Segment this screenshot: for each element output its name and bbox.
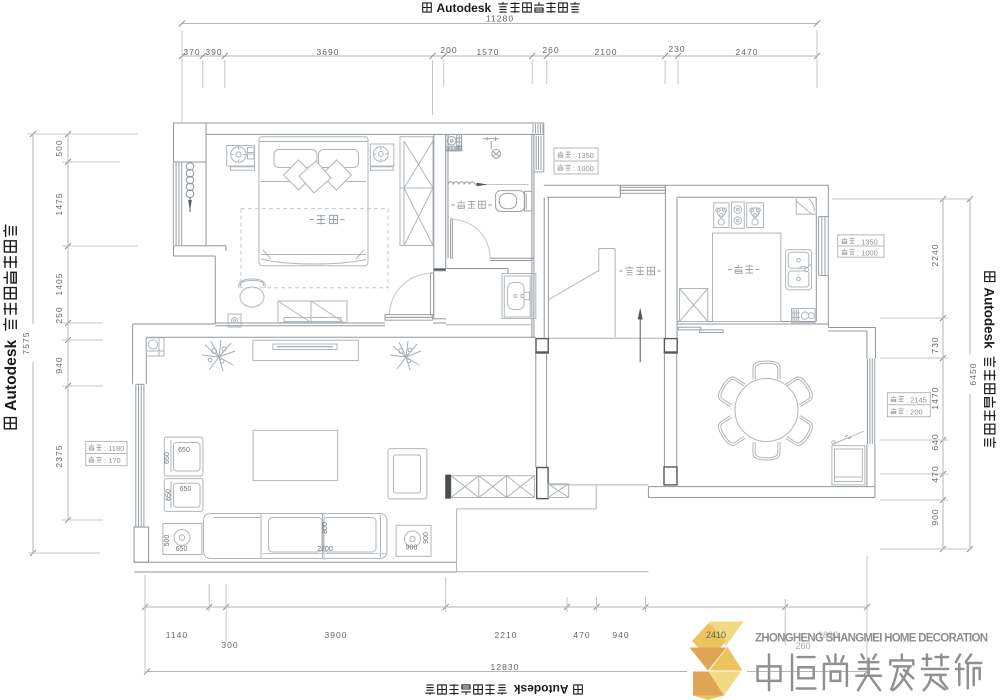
- svg-text:Autodesk: Autodesk: [982, 287, 997, 349]
- svg-text:500: 500: [54, 139, 64, 156]
- svg-text:Autodesk: Autodesk: [3, 339, 20, 410]
- svg-text:3690: 3690: [316, 47, 339, 57]
- svg-text:2410: 2410: [706, 630, 726, 640]
- svg-text:300: 300: [221, 640, 238, 650]
- svg-text:390: 390: [205, 47, 222, 57]
- svg-text:640: 640: [930, 433, 940, 450]
- svg-text:900: 900: [406, 545, 418, 552]
- svg-text:Autodesk: Autodesk: [514, 682, 569, 696]
- svg-text:800: 800: [322, 522, 329, 534]
- svg-text:2375: 2375: [54, 444, 64, 467]
- svg-text:230: 230: [668, 44, 685, 54]
- svg-text:1570: 1570: [476, 47, 499, 57]
- svg-text:900: 900: [930, 508, 940, 525]
- svg-text:2470: 2470: [735, 47, 758, 57]
- svg-text:: 1180: : 1180: [104, 444, 124, 453]
- svg-text:900: 900: [423, 532, 430, 544]
- svg-text:: 1000: : 1000: [857, 248, 878, 257]
- svg-text:3900: 3900: [324, 630, 347, 640]
- svg-text:2200: 2200: [317, 546, 333, 553]
- svg-text:2210: 2210: [494, 630, 517, 640]
- svg-text:1405: 1405: [54, 272, 64, 295]
- svg-text:650: 650: [164, 452, 171, 464]
- svg-text:2240: 2240: [930, 243, 940, 266]
- svg-text:Autodesk: Autodesk: [437, 1, 492, 15]
- svg-text:: 1350: : 1350: [857, 237, 878, 246]
- svg-text:650: 650: [166, 489, 173, 501]
- svg-text:: 200: : 200: [906, 408, 923, 417]
- svg-text:500: 500: [164, 535, 171, 547]
- svg-text:650: 650: [176, 546, 188, 553]
- svg-text:6450: 6450: [968, 362, 978, 385]
- svg-text:: 170: : 170: [104, 456, 121, 465]
- svg-text:200: 200: [440, 45, 457, 55]
- svg-text:1470: 1470: [930, 386, 940, 409]
- svg-text:: 2145: : 2145: [906, 396, 927, 405]
- svg-text:260: 260: [542, 45, 559, 55]
- svg-text:730: 730: [930, 336, 940, 353]
- svg-text:470: 470: [930, 465, 940, 482]
- svg-text:470: 470: [573, 630, 590, 640]
- svg-text:1475: 1475: [54, 192, 64, 215]
- svg-text:ZHONGHENG SHANGMEI HOME DECORA: ZHONGHENG SHANGMEI HOME DECORATION: [755, 633, 988, 645]
- svg-text:650: 650: [178, 447, 190, 454]
- svg-text:940: 940: [612, 630, 629, 640]
- svg-text:: 1000: : 1000: [573, 164, 594, 173]
- svg-text:370: 370: [183, 47, 200, 57]
- svg-text:: 1350: : 1350: [573, 151, 594, 160]
- svg-text:250: 250: [54, 306, 64, 323]
- svg-text:11280: 11280: [486, 14, 514, 24]
- svg-text:1140: 1140: [166, 630, 188, 640]
- svg-text:7575: 7575: [21, 331, 31, 354]
- svg-text:650: 650: [180, 486, 192, 493]
- svg-text:12830: 12830: [491, 662, 520, 672]
- svg-text:2100: 2100: [594, 47, 617, 57]
- svg-text:940: 940: [54, 356, 64, 373]
